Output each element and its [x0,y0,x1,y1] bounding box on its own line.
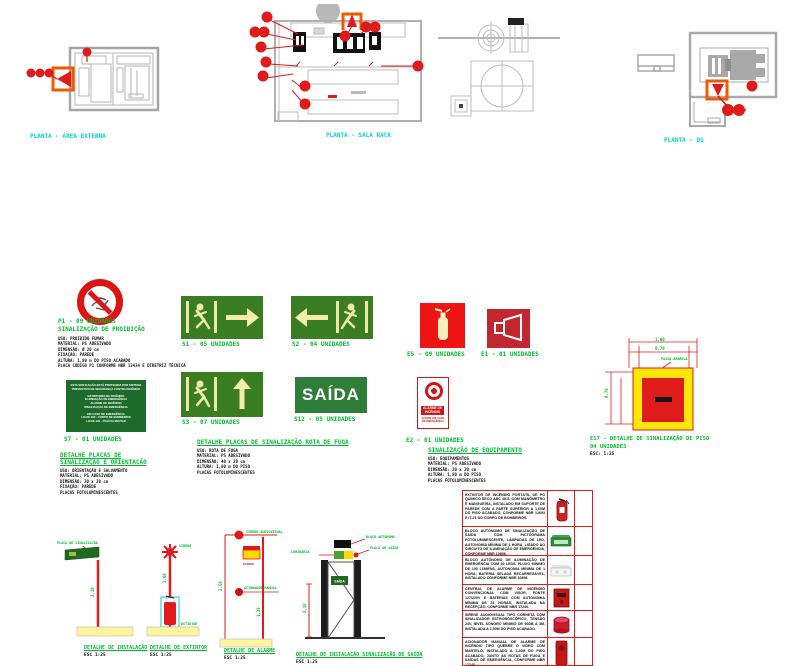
e17-dim-top: 1,00 [655,337,665,342]
saida-text: SAÍDA [302,385,360,405]
d3-scale: ESC 1:25 [224,656,246,661]
svg-text:1,60: 1,60 [162,573,167,583]
extinguisher-sign-e5 [420,303,465,348]
table-row: EXTINTOR DE INCÊNDIO PORTÁTIL DE PÓ QUÍM… [463,491,592,527]
e5-label: E5 - 09 UNIDADES [407,351,465,358]
p1-specs: USO: PROIBIDO FUMAR MATERIAL: PS ADESIVA… [58,336,186,368]
plan-left-label: PLANTA - ÁREA EXTERNA [30,133,106,140]
exit-luminaire-icon [334,540,351,548]
e17-dim-top2: 0,70 [655,346,665,351]
svg-text:PLACA DE SAÍDA: PLACA DE SAÍDA [370,545,398,550]
svg-text:PLACA DE SINALIZAÇÃO: PLACA DE SINALIZAÇÃO [57,540,98,545]
fire-extinguisher-icon [161,596,179,627]
cad-sheet: PLANTA - ÁREA EXTERNA [0,0,800,666]
instruction-sign-s7: ESTA EDIFICAÇÃO ESTÁ PROTEGIDA POR SISTE… [66,380,146,432]
d4-scale: ESC 1:25 [296,660,318,665]
svg-text:BLOCO AUTÔNOMO: BLOCO AUTÔNOMO [366,534,395,539]
detail-sign-post: PLACA DE SINALIZAÇÃO 2,10 [57,540,133,636]
svg-text:1,20: 1,20 [256,607,261,617]
s1-label: S1 - 05 UNIDADES [182,341,240,348]
svg-text:STROBO: STROBO [243,562,254,566]
svg-text:2,10: 2,10 [90,587,95,597]
d4-title: DETALHE DE INSTALAÇÃO SINALIZAÇÃO DE SAÍ… [296,652,422,658]
call-point-icon [235,588,243,596]
strobe-cap [243,546,260,550]
siren-icon [166,548,174,556]
e17-caption-2: 04 UNIDADES [590,444,626,450]
svg-text:SIRENE: SIRENE [179,544,191,548]
d3-title: DETALHE DE ALARME [224,648,275,654]
s12-label: S12 - 05 UNIDADES [294,416,355,423]
floor-marking-detail: 1,00 0,70 0,70 FAIXA AMARELA [593,336,711,434]
siren-icon [548,613,574,635]
alarm-band: ALARME DE INCÊNDIO [421,406,444,415]
svg-text:2,10: 2,10 [302,603,307,613]
d1-title: DETALHE DE INSTALAÇÃO [84,645,147,651]
hatched-equipment [508,18,524,25]
p1-title: SINALIZAÇÃO DE PROIBIÇÃO [58,326,145,333]
equipment-block [708,50,765,80]
equipment-spec-table: EXTINTOR DE INCÊNDIO PORTÁTIL DE PÓ QUÍM… [462,490,593,666]
detail-alarm-post: SIRENE AUDIOVISUAL STROBO ACIONADOR MANU… [218,530,283,647]
emergency-light-icon [548,561,574,579]
exit-luminaire-icon [548,532,574,550]
e17-dim-left: 0,70 [604,388,609,398]
e17-scale: ESC: 1:25 [590,452,614,457]
s3-label: S3 - 07 UNIDADES [182,419,240,426]
siren-balloon [235,531,244,540]
floor-plan-center [248,4,570,130]
alarm-sub-text: ACIONE EM CASO DE EMERGÊNCIA [420,417,446,424]
plan-right-label: PLANTA - DG [664,137,704,144]
installation-details: PLACA DE SINALIZAÇÃO 2,10 SIRENE EXT [53,513,398,651]
d2-scale: ESC 1:25 [150,653,172,658]
svg-text:SAÍDA: SAÍDA [334,579,345,584]
svg-text:SIRENE AUDIOVISUAL: SIRENE AUDIOVISUAL [246,530,283,534]
block-orientation: DETALHE PLACAS DE SINALIZAÇÃO E ORIENTAÇ… [60,452,147,495]
table-row: BLOCO AUTÔNOMO DE SINALIZAÇÃO DE SAÍDA C… [463,527,592,556]
svg-text:EXTINTOR: EXTINTOR [181,622,198,626]
strobe-icon [243,550,260,559]
exit-sign-s2 [291,296,373,339]
d1-scale: ESC 1:25 [84,653,106,658]
saida-sign: SAÍDA [295,377,367,413]
svg-text:LUMINÁRIA: LUMINÁRIA [291,549,309,554]
e1-label: E1 - 01 UNIDADES [481,351,539,358]
p1-code: P1 - 09 UNIDADES [58,318,116,325]
table-row: ACIONADOR MANUAL DE ALARME DE INCÊNDIO T… [463,638,592,666]
table-row: SIRENE AUDIOVISUAL TIPO CORNETA COM SINA… [463,611,592,638]
plan-center-label: PLANTA - SALA RACK [326,132,391,139]
e17-caption-1: E17 - DETALHE DE SINALIZAÇÃO DE PISO [590,436,709,442]
horn-sign-e1 [487,309,530,348]
alarm-panel-icon [548,587,574,609]
e17-leader-label: FAIXA AMARELA [661,357,688,361]
table-row: BLOCO AUTÔNOMO DE ILUMINAÇÃO DE EMERGÊNC… [463,556,592,585]
block-escape-route: DETALHE PLACAS DE SINALIZAÇÃO ROTA DE FU… [197,439,349,475]
block-equipment: SINALIZAÇÃO DE EQUIPAMENTO USO: EQUIPAME… [428,447,522,483]
e2-label: E2 - 01 UNIDADES [406,437,464,444]
svg-text:2,50: 2,50 [218,581,223,591]
floor-plan-right [628,28,783,143]
svg-text:ACIONADOR MANUAL: ACIONADOR MANUAL [244,586,277,590]
s2-label: S2 - 04 UNIDADES [292,341,350,348]
s7-label: S7 - 01 UNIDADES [64,436,122,443]
extinguisher-footprint [655,397,672,402]
table-row: CENTRAL DE ALARME DE INCÊNDIO CONVENCION… [463,585,592,611]
alarm-button-sign-e2: ALARME DE INCÊNDIO ACIONE EM CASO DE EME… [417,377,449,429]
exit-sign-s3 [181,372,263,417]
d2-title: DETALHE DE EXTINTOR [150,645,207,651]
manual-call-point-icon [548,640,574,666]
detail-extinguisher-post: SIRENE EXTINTOR 1,60 [147,544,199,636]
exit-sign-s1 [181,296,263,339]
fire-extinguisher-icon [548,494,574,524]
detail-exit-door: BLOCO AUTÔNOMO PLACA DE SAÍDA LUMINÁRIA … [291,534,398,638]
alarm-button-icon [425,382,443,400]
floor-plan-left [25,38,175,123]
